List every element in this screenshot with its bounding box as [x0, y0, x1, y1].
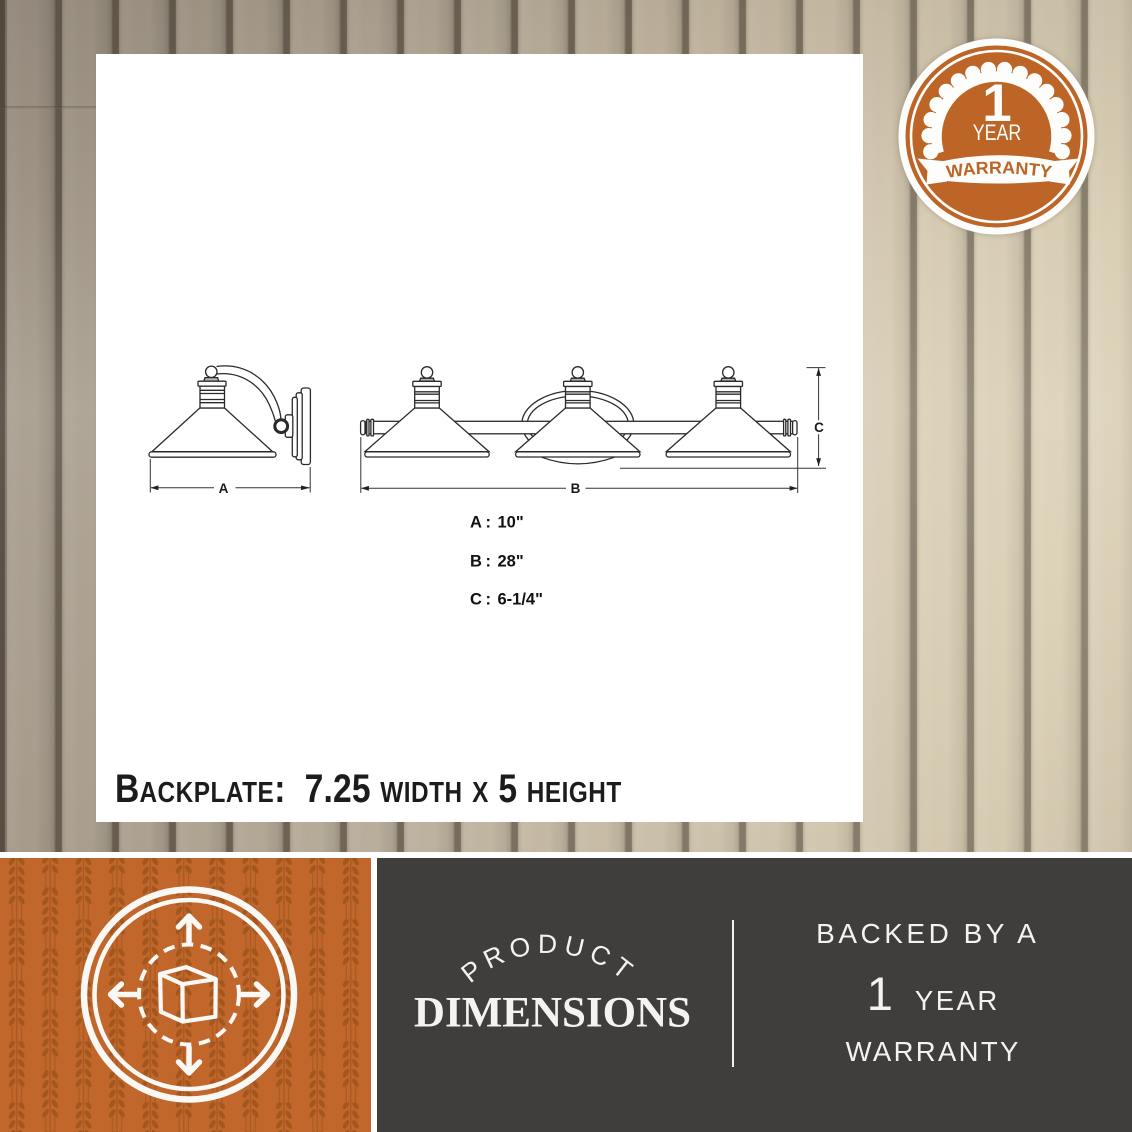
svg-text:DIMENSIONS: DIMENSIONS	[414, 990, 691, 1037]
svg-text:YEAR: YEAR	[973, 120, 1022, 145]
svg-text:C:6-1/4": C:6-1/4"	[470, 591, 543, 609]
svg-text:B: B	[571, 481, 581, 496]
svg-text:PRODUCT: PRODUCT	[455, 929, 642, 989]
svg-text:C: C	[814, 420, 824, 435]
svg-text:A: A	[219, 481, 229, 496]
svg-text:B:28": B:28"	[470, 552, 524, 570]
svg-text:A:10": A:10"	[470, 514, 524, 532]
